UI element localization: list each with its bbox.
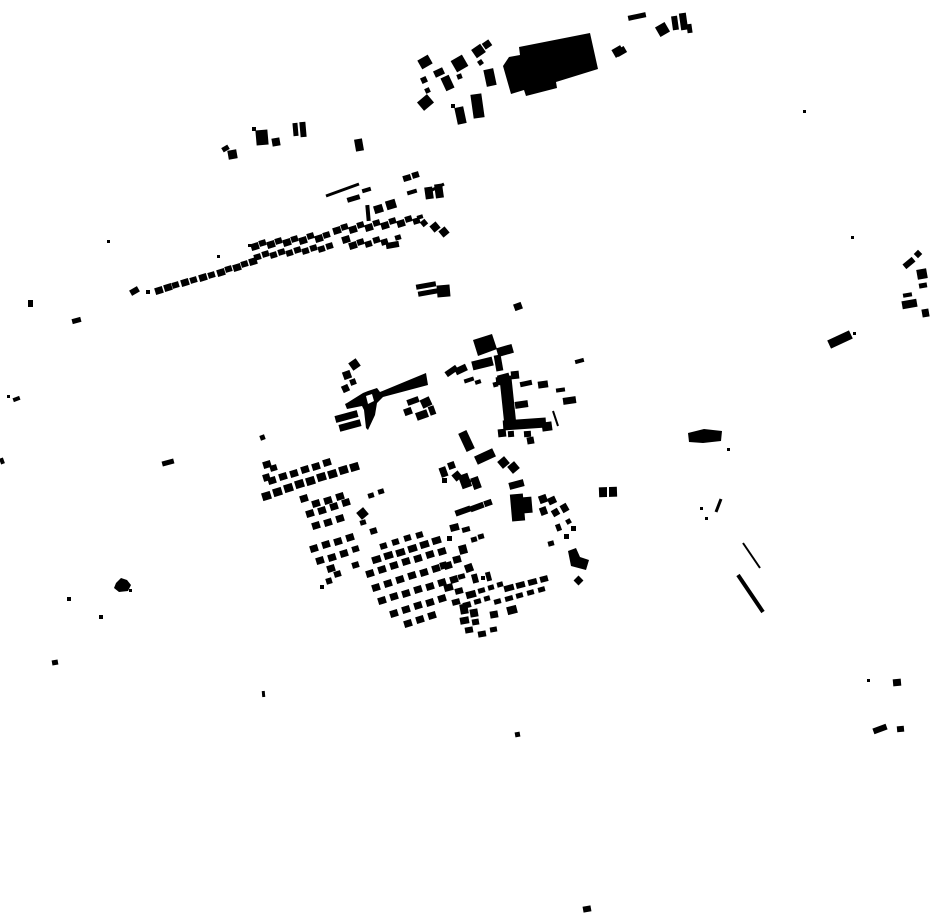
building-footprint: [348, 358, 361, 371]
building-footprint: [416, 281, 437, 289]
building-footprint: [407, 571, 417, 580]
linear-feature: [326, 184, 359, 196]
building-footprint: [727, 448, 730, 451]
building-footprint: [388, 217, 396, 225]
building-footprint: [559, 503, 569, 513]
building-footprint: [827, 330, 853, 348]
building-footprint: [309, 244, 317, 252]
building-footprint: [504, 595, 513, 602]
building-footprint: [515, 400, 529, 409]
building-footprint: [402, 174, 411, 182]
building-footprint: [901, 299, 917, 309]
building-footprint: [451, 55, 469, 73]
building-footprint: [471, 573, 479, 583]
building-footprint: [537, 586, 545, 593]
building-footprint: [437, 284, 451, 297]
building-footprint: [162, 459, 175, 467]
building-footprint: [354, 138, 364, 151]
building-footprint: [372, 219, 380, 227]
building-footprint: [348, 241, 358, 250]
building-footprint: [317, 506, 327, 515]
building-footprint: [470, 93, 484, 118]
building-footprint: [356, 238, 364, 246]
building-footprint: [417, 55, 432, 70]
building-footprint: [309, 544, 319, 553]
building-footprint: [198, 273, 208, 282]
building-footprint: [425, 550, 435, 559]
building-footprint: [456, 73, 462, 79]
building-footprint: [180, 278, 190, 287]
building-footprint: [541, 421, 552, 431]
building-footprint: [258, 239, 266, 247]
building-footprint: [395, 548, 406, 557]
building-footprint: [489, 610, 498, 618]
building-footprint: [490, 626, 498, 632]
building-footprint: [481, 576, 485, 580]
building-footprint: [429, 221, 440, 232]
building-footprint: [511, 371, 520, 380]
building-footprint: [323, 518, 333, 527]
building-footprint: [454, 587, 463, 595]
building-footprint: [444, 365, 458, 377]
building-footprint: [326, 564, 336, 573]
building-footprint: [440, 75, 454, 91]
building-footprint: [341, 384, 350, 393]
building-footprint: [508, 431, 514, 437]
building-footprint: [454, 106, 466, 124]
building-footprint: [515, 581, 525, 589]
building-footprint: [299, 494, 309, 503]
building-footprint: [413, 585, 423, 594]
building-footprint: [367, 492, 374, 499]
building-footprint: [232, 263, 242, 272]
building-footprint: [299, 122, 306, 137]
building-footprint: [515, 732, 521, 738]
building-footprint: [7, 395, 10, 398]
building-footprint: [575, 358, 585, 364]
building-footprint: [471, 357, 494, 371]
building-footprint: [311, 499, 321, 508]
building-footprint: [526, 589, 534, 596]
building-footprint: [493, 598, 501, 605]
courtyard-void: [607, 487, 609, 497]
linear-feature: [743, 543, 760, 568]
building-footprint: [283, 483, 294, 493]
building-footprint: [419, 568, 429, 577]
building-footprint: [129, 286, 140, 296]
building-footprint: [555, 523, 562, 531]
building-footprint: [305, 476, 316, 486]
building-footprint: [216, 268, 226, 277]
building-footprint: [347, 194, 361, 203]
building-footprint: [335, 514, 345, 523]
building-footprint: [688, 429, 722, 443]
building-footprint: [447, 461, 456, 470]
building-footprint: [401, 605, 411, 614]
building-footprint: [359, 519, 366, 526]
building-footprint: [28, 300, 33, 307]
building-footprint: [316, 472, 327, 482]
courtyard-void: [533, 391, 554, 408]
building-footprint: [351, 561, 359, 569]
building-footprint: [207, 271, 215, 279]
building-footprint: [427, 611, 437, 620]
building-footprint: [449, 523, 460, 532]
building-footprint: [338, 465, 349, 475]
building-footprint: [556, 387, 565, 392]
building-footprint: [482, 39, 493, 49]
building-footprint: [99, 615, 103, 619]
building-footprint: [293, 246, 301, 254]
building-footprint: [325, 577, 332, 584]
building-footprint: [461, 526, 470, 533]
building-footprint: [568, 548, 589, 570]
building-footprint: [903, 292, 913, 298]
building-footprint: [389, 609, 399, 618]
building-footprint: [72, 317, 82, 324]
building-footprint: [340, 223, 348, 231]
building-footprint: [227, 149, 237, 159]
building-footprint: [872, 724, 887, 734]
building-footprint: [564, 534, 569, 539]
building-footprint: [671, 16, 679, 31]
building-footprint: [914, 250, 922, 258]
building-footprint: [349, 378, 357, 386]
building-footprint: [425, 582, 435, 591]
building-footprint: [451, 598, 460, 606]
building-footprint: [406, 396, 419, 406]
building-footprint: [401, 589, 411, 598]
building-footprint: [867, 679, 870, 682]
building-footprint: [451, 104, 455, 108]
building-footprint: [171, 281, 179, 289]
building-footprint: [261, 491, 272, 501]
building-footprint: [919, 282, 928, 288]
building-footprint: [411, 171, 419, 179]
building-footprint: [515, 592, 523, 599]
building-footprint: [300, 465, 310, 474]
building-footprint: [403, 619, 413, 628]
building-footprint: [853, 332, 856, 335]
building-footprint: [224, 265, 232, 273]
building-footprint: [52, 660, 59, 666]
building-footprint: [498, 429, 507, 438]
building-footprint: [439, 466, 449, 478]
building-footprint: [465, 590, 476, 599]
building-footprint: [292, 123, 298, 136]
building-footprint: [431, 564, 441, 573]
building-footprint: [700, 507, 703, 510]
building-footprint: [538, 380, 549, 388]
building-footprint: [333, 537, 343, 546]
building-footprint: [916, 268, 928, 280]
building-footprint: [454, 505, 471, 516]
building-footprint: [470, 476, 482, 490]
building-footprint: [574, 576, 584, 586]
linear-feature: [553, 411, 558, 426]
building-footprint: [383, 551, 394, 560]
building-footprint: [371, 583, 381, 592]
building-footprint: [469, 502, 484, 512]
building-footprint: [473, 598, 481, 605]
building-footprint: [272, 487, 283, 497]
building-footprint: [413, 554, 423, 563]
building-footprint: [67, 597, 71, 601]
building-footprint: [325, 242, 333, 250]
building-footprint: [583, 905, 592, 912]
building-footprint: [240, 260, 248, 268]
building-footprint: [655, 22, 670, 37]
building-footprint: [503, 33, 598, 96]
building-footprint: [0, 457, 5, 464]
building-footprint: [470, 536, 477, 542]
building-footprint: [372, 236, 380, 244]
building-footprint: [803, 110, 806, 113]
building-footprint: [437, 547, 447, 556]
building-footprint: [327, 553, 337, 562]
building-footprint: [377, 596, 387, 605]
building-footprint: [342, 370, 352, 380]
building-footprint: [419, 540, 430, 549]
building-footprint: [321, 540, 331, 549]
building-footprint: [415, 409, 429, 421]
building-footprint: [893, 679, 902, 687]
building-footprint: [373, 204, 384, 214]
building-footprint: [483, 68, 496, 87]
building-footprint: [383, 579, 393, 588]
building-footprint: [506, 605, 518, 615]
building-footprint: [417, 94, 434, 111]
building-footprint: [345, 533, 355, 542]
building-footprint: [289, 469, 299, 478]
building-footprint: [457, 573, 465, 580]
building-footprint: [348, 225, 358, 234]
building-footprint: [305, 509, 315, 518]
building-footprint: [403, 534, 411, 542]
building-footprint: [356, 221, 364, 229]
building-footprint: [271, 137, 280, 146]
building-footprint: [921, 308, 929, 317]
building-footprint: [369, 527, 377, 535]
building-footprint: [322, 458, 332, 467]
building-footprint: [364, 223, 374, 232]
building-footprint: [459, 616, 469, 624]
building-footprint: [538, 494, 548, 504]
building-footprint: [262, 691, 266, 697]
building-footprint: [107, 240, 110, 243]
building-footprint: [415, 531, 423, 539]
building-footprint: [278, 472, 288, 481]
building-footprint: [551, 508, 561, 518]
building-footprint: [311, 462, 321, 471]
building-footprint: [508, 479, 524, 490]
building-footprint: [349, 462, 360, 472]
building-footprint: [385, 199, 397, 211]
building-footprint: [474, 448, 496, 465]
building-footprint: [513, 302, 523, 311]
building-footprint: [496, 377, 503, 386]
building-footprint: [483, 595, 490, 601]
building-footprint: [261, 250, 269, 258]
building-footprint: [686, 24, 692, 34]
building-footprint: [315, 556, 325, 565]
building-footprint: [417, 214, 424, 220]
building-footprint: [339, 549, 349, 558]
map-canvas: [0, 0, 930, 924]
building-footprint: [351, 545, 359, 553]
building-footprint: [401, 557, 411, 566]
building-footprint: [487, 584, 494, 590]
building-footprint: [269, 251, 277, 259]
building-footprint: [285, 249, 293, 257]
building-footprint: [403, 407, 413, 416]
building-footprint: [425, 598, 435, 607]
building-footprint: [341, 235, 351, 244]
building-footprint: [163, 283, 173, 292]
building-footprint: [301, 247, 309, 255]
building-footprint: [483, 499, 493, 507]
building-footprint: [317, 245, 325, 253]
building-footprint: [248, 244, 251, 247]
building-footprint: [477, 533, 484, 539]
building-footprint: [266, 240, 276, 249]
building-footprint: [415, 615, 425, 624]
building-footprint: [458, 544, 468, 555]
building-footprint: [356, 507, 369, 520]
building-footprint: [437, 594, 447, 603]
building-footprint: [290, 235, 298, 243]
building-footprint: [705, 517, 708, 520]
linear-feature: [738, 575, 763, 612]
building-footprint: [396, 219, 406, 228]
building-footprint: [526, 436, 534, 444]
building-footprint: [379, 542, 387, 550]
building-footprint: [459, 603, 469, 614]
building-footprint: [255, 130, 268, 146]
building-footprint: [494, 355, 504, 372]
building-footprint: [129, 589, 132, 592]
building-footprint: [391, 538, 399, 546]
building-footprint: [469, 608, 478, 617]
building-footprint: [524, 431, 531, 437]
building-footprint: [424, 87, 431, 94]
building-footprint: [485, 572, 492, 582]
building-footprint: [563, 396, 577, 405]
building-footprint: [464, 563, 474, 573]
building-footprint: [277, 248, 285, 256]
building-footprint: [322, 231, 330, 239]
building-footprint: [380, 221, 390, 230]
building-footprint: [520, 380, 533, 387]
building-footprint: [897, 726, 904, 733]
building-footprint: [407, 544, 418, 553]
building-footprint: [679, 13, 688, 31]
building-footprint: [377, 488, 384, 495]
building-footprint: [389, 592, 399, 601]
building-footprint: [259, 434, 265, 440]
building-footprint: [320, 585, 324, 589]
building-footprint: [13, 396, 21, 402]
building-footprint: [362, 187, 372, 193]
building-footprint: [298, 236, 308, 245]
building-footprint: [282, 238, 292, 247]
building-footprint: [114, 578, 131, 592]
building-footprint: [394, 234, 401, 241]
building-footprint: [365, 205, 370, 221]
building-footprint: [311, 521, 321, 530]
building-footprint: [628, 12, 647, 21]
building-footprint: [431, 536, 442, 545]
building-footprint: [420, 219, 428, 227]
building-footprint: [364, 240, 372, 248]
building-footprint: [477, 59, 484, 66]
building-footprint: [217, 255, 220, 258]
building-footprint: [389, 561, 399, 570]
building-footprint: [464, 377, 475, 384]
building-footprint: [294, 479, 305, 489]
building-footprint: [365, 569, 375, 578]
building-footprint: [527, 578, 537, 586]
building-footprint: [189, 276, 197, 284]
building-footprint: [478, 630, 487, 637]
building-footprint: [433, 67, 445, 78]
building-footprint: [475, 379, 482, 385]
building-footprint: [458, 430, 475, 452]
building-footprint: [395, 575, 405, 584]
building-footprint: [407, 189, 418, 196]
building-footprint: [571, 526, 576, 531]
building-footprint: [539, 575, 548, 583]
building-footprint: [496, 581, 503, 587]
building-footprint: [851, 236, 854, 239]
linear-feature: [716, 499, 721, 512]
building-footprint: [547, 496, 557, 506]
building-footprint: [539, 506, 548, 516]
footprint-map: [0, 0, 930, 924]
building-footprint: [449, 575, 459, 584]
building-footprint: [377, 565, 387, 574]
building-footprint: [442, 478, 447, 483]
building-footprint: [146, 290, 150, 294]
building-footprint: [565, 518, 572, 525]
building-footprint: [252, 127, 256, 131]
building-footprint: [428, 405, 437, 416]
building-footprint: [314, 234, 324, 243]
building-footprint: [418, 288, 439, 296]
building-footprint: [154, 286, 164, 295]
building-footprint: [522, 497, 532, 514]
building-footprint: [547, 540, 554, 546]
building-footprint: [473, 334, 497, 356]
building-footprint: [332, 226, 342, 235]
building-footprint: [306, 232, 314, 240]
building-footprint: [250, 242, 260, 251]
building-footprint: [902, 257, 915, 269]
building-footprint: [447, 536, 452, 541]
building-footprint: [333, 570, 341, 578]
building-footprint: [438, 226, 449, 237]
building-footprint: [452, 555, 462, 564]
building-footprint: [413, 601, 423, 610]
building-footprint: [274, 237, 282, 245]
building-footprint: [465, 626, 474, 633]
building-footprint: [327, 469, 338, 479]
building-footprint: [371, 555, 382, 564]
building-footprint: [420, 76, 428, 84]
building-footprint: [477, 587, 485, 594]
building-footprint: [472, 618, 480, 625]
building-footprint: [404, 215, 412, 223]
